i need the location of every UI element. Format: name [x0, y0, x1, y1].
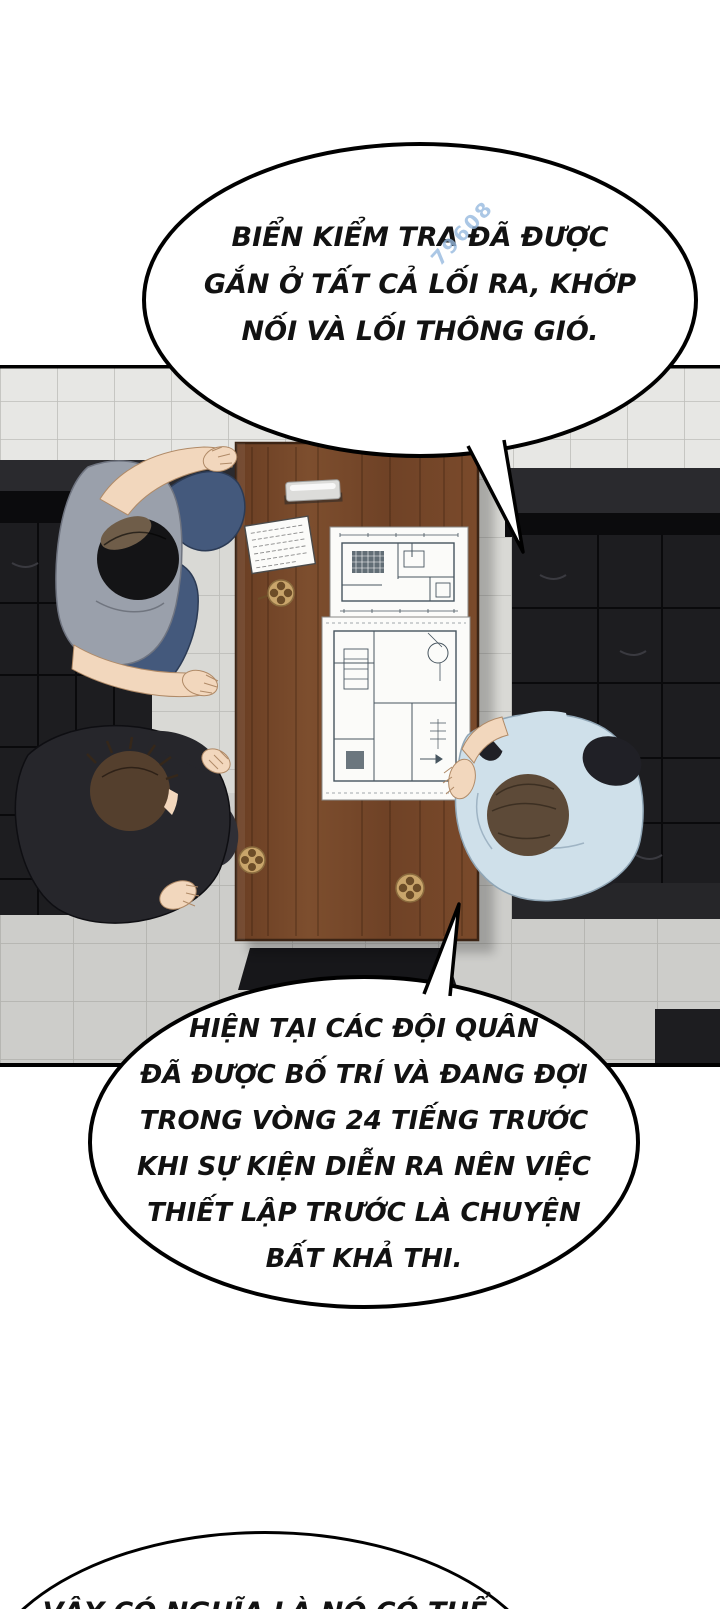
speech-line: THIẾT LẬP TRƯỚC LÀ CHUYỆN: [147, 1190, 581, 1236]
speech-line: BẤT KHẢ THI.: [266, 1236, 463, 1282]
speech-line: VẬY CÓ NGHĨA LÀ NÓ CÓ THỂ: [43, 1589, 488, 1609]
comic-page: BIỂN KIỂM TRA ĐÃ ĐƯỢC GẮN Ở TẤT CẢ LỐI R…: [0, 0, 720, 1609]
speech-line: GẮN Ở TẤT CẢ LỐI RA, KHỚP: [204, 261, 636, 308]
coaster: [239, 847, 265, 873]
scene-panel: [0, 363, 720, 1069]
speech-line: ĐÃ ĐƯỢC BỐ TRÍ VÀ ĐANG ĐỢI: [140, 1052, 587, 1098]
speech-bubble-bottom-partial: VẬY CÓ NGHĨA LÀ NÓ CÓ THỂ: [0, 1531, 555, 1609]
speech-line: KHI SỰ KIỆN DIỄN RA NÊN VIỆC: [137, 1144, 591, 1190]
note-paper: [245, 516, 316, 573]
speech-bubble-middle: HIỆN TẠI CÁC ĐỘI QUÂN ĐÃ ĐƯỢC BỐ TRÍ VÀ …: [88, 975, 640, 1309]
speech-line: NỐI VÀ LỐI THÔNG GIÓ.: [242, 308, 599, 355]
speech-bubble-top: BIỂN KIỂM TRA ĐÃ ĐƯỢC GẮN Ở TẤT CẢ LỐI R…: [142, 142, 698, 458]
speech-line: TRONG VÒNG 24 TIẾNG TRƯỚC: [140, 1098, 589, 1144]
blueprint-lower: [322, 617, 470, 800]
blueprint-upper: [330, 527, 468, 617]
speech-line: BIỂN KIỂM TRA ĐÃ ĐƯỢC: [232, 214, 609, 261]
tray: [284, 479, 343, 504]
coaster: [396, 874, 424, 902]
speech-line: HIỆN TẠI CÁC ĐỘI QUÂN: [189, 1006, 539, 1052]
